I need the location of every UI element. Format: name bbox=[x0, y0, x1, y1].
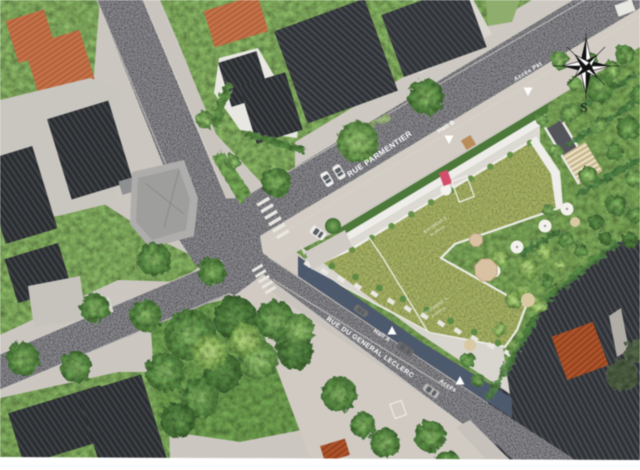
svg-text:S: S bbox=[580, 101, 588, 116]
